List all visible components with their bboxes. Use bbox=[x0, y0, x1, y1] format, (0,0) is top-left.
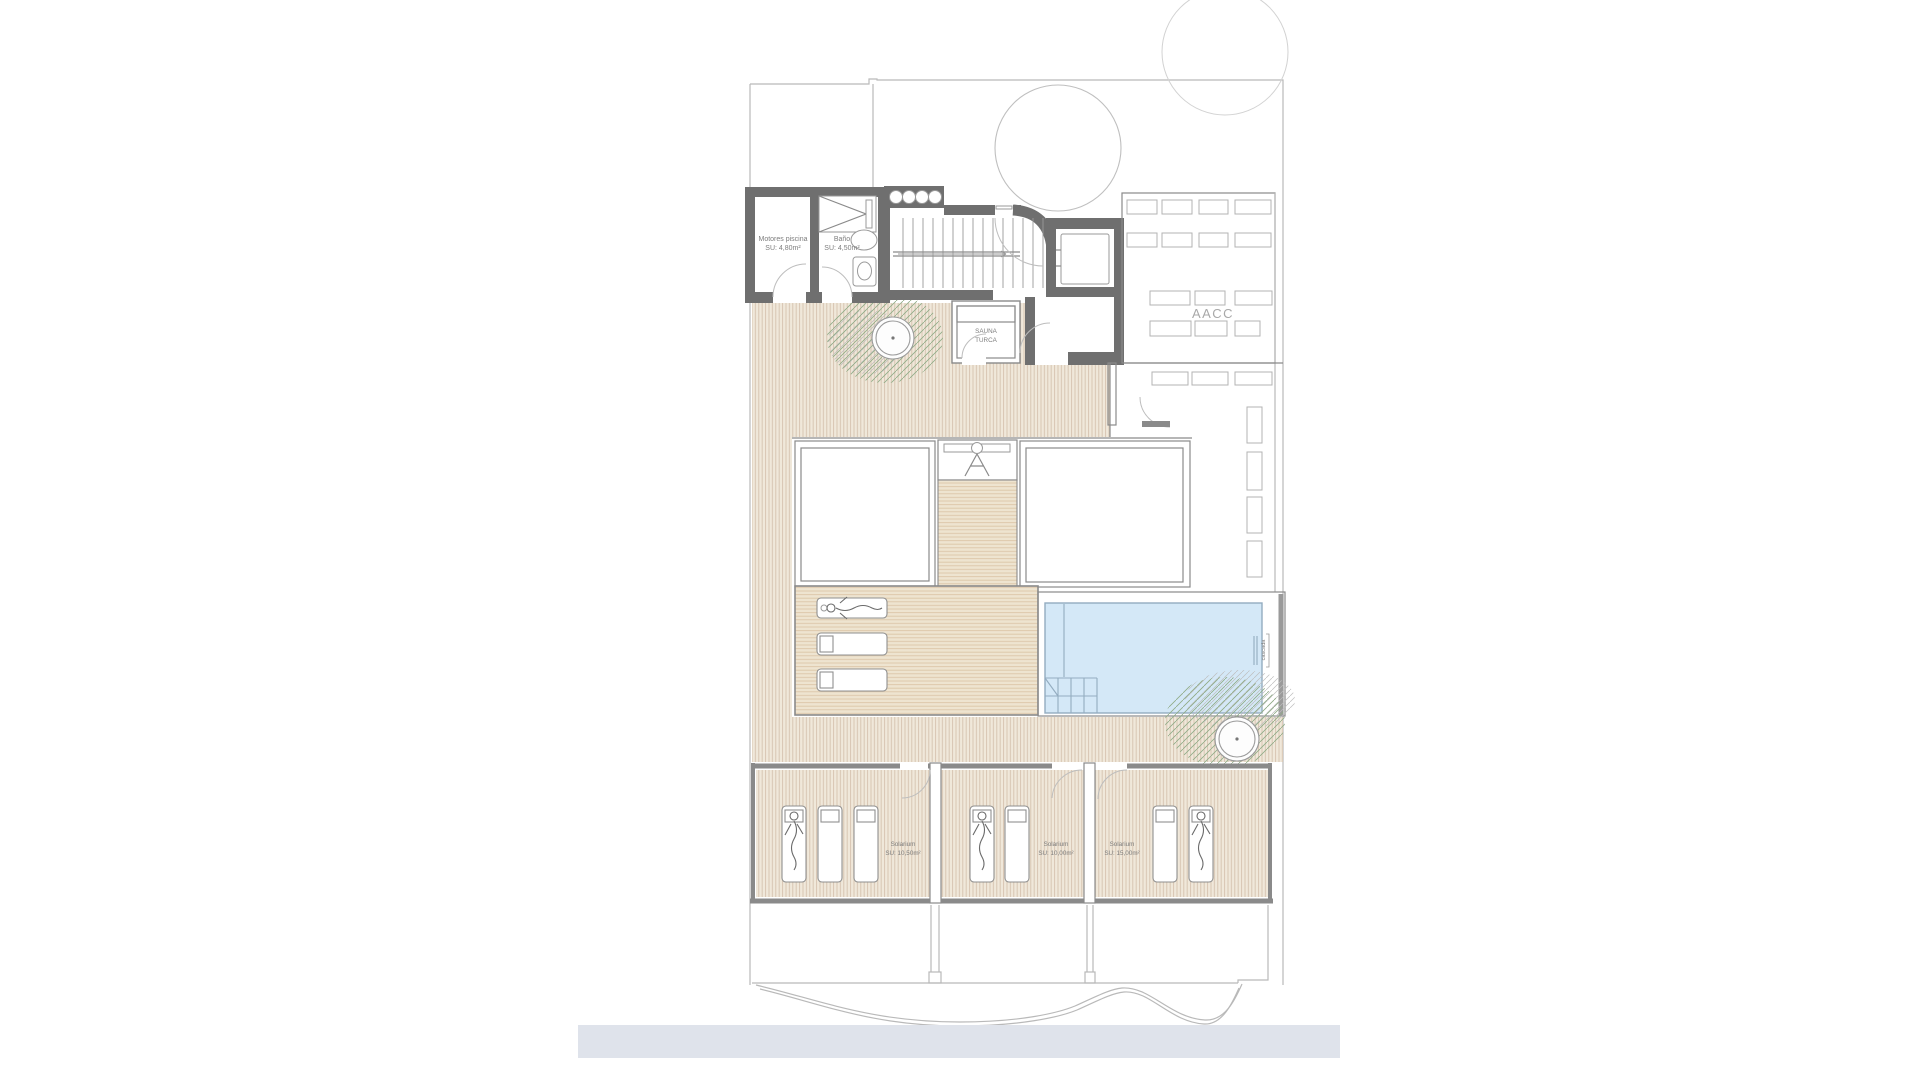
sauna-door-gap bbox=[962, 357, 986, 365]
footer-color-bar bbox=[578, 1025, 1340, 1058]
motores-room-label: Motores piscina bbox=[758, 236, 807, 243]
solarium-3-label: Solarium bbox=[1110, 841, 1135, 848]
elevator bbox=[1056, 229, 1114, 287]
solarium-3-area: SU: 15,00m² bbox=[1104, 850, 1139, 857]
solarium-2-label: Solarium bbox=[1044, 841, 1069, 848]
floor-plan-page: SAUNA TURCA AACC bbox=[0, 0, 1920, 1080]
elevator-car bbox=[1061, 234, 1109, 284]
solarium-1-area: SU: 10,50m² bbox=[885, 850, 920, 857]
bano-room-label: Baño bbox=[834, 236, 850, 243]
sauna-room: SAUNA TURCA bbox=[952, 301, 1020, 365]
deck-lounger-pillow bbox=[820, 636, 833, 652]
bano-room-area: SU: 4,50m² bbox=[824, 245, 860, 252]
deck-lounger-pillow bbox=[820, 672, 833, 688]
solarium-2-area: SU: 10,00m² bbox=[1038, 850, 1073, 857]
solarium-1-loungers bbox=[782, 806, 878, 882]
solarium-1-label: Solarium bbox=[891, 841, 916, 848]
aacc-label: AACC bbox=[1192, 306, 1234, 321]
sauna-label-line2: TURCA bbox=[975, 337, 997, 344]
spa-deck bbox=[795, 586, 1038, 715]
solarium-partition bbox=[1084, 763, 1095, 903]
cascada-label: cascada bbox=[1261, 639, 1267, 661]
solarium-partition bbox=[930, 763, 941, 903]
shower-panel bbox=[866, 200, 872, 228]
floor-plan-drawing: SAUNA TURCA AACC bbox=[0, 0, 1920, 1080]
pergola-strip bbox=[938, 480, 1017, 590]
tree-canopy-icon bbox=[995, 85, 1121, 211]
massage-table bbox=[817, 597, 887, 619]
motores-room-area: SU: 4,80m² bbox=[765, 245, 801, 252]
planter-top bbox=[827, 293, 943, 383]
sauna-label-line1: SAUNA bbox=[975, 328, 997, 335]
wc-bowl bbox=[858, 262, 872, 280]
top-opening-door-leaf bbox=[996, 206, 1012, 209]
solarium-band: Solarium SU: 10,50m² Solarium SU: 10,00m… bbox=[750, 763, 1273, 903]
